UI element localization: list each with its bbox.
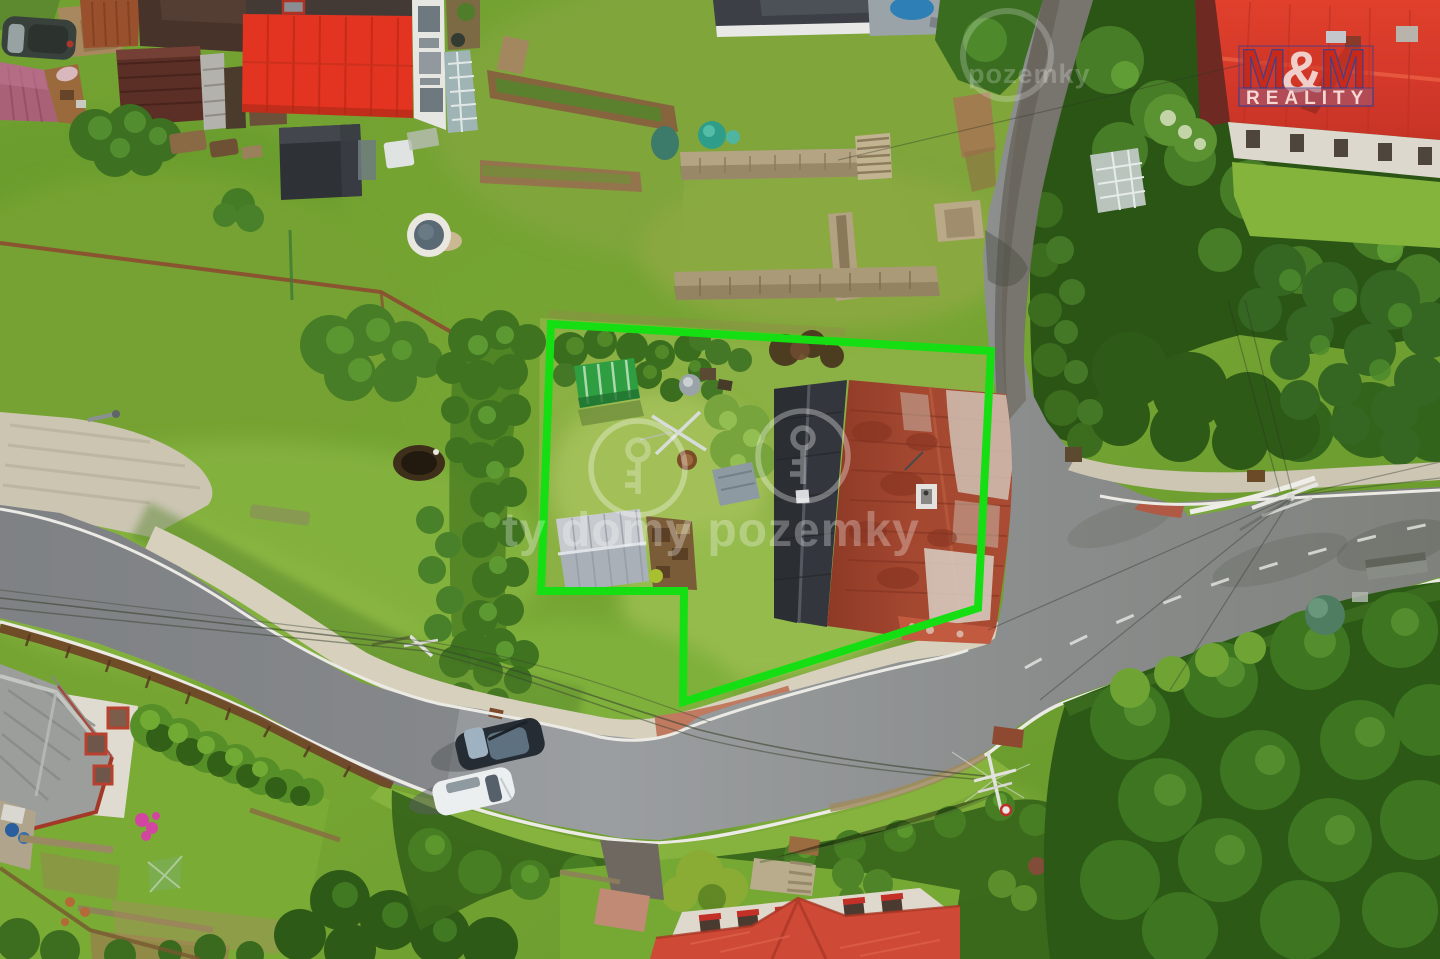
svg-text:REALITY: REALITY <box>1246 88 1369 109</box>
svg-text:ty domy pozemky: ty domy pozemky <box>502 504 920 557</box>
svg-text:pozemky: pozemky <box>968 59 1091 89</box>
